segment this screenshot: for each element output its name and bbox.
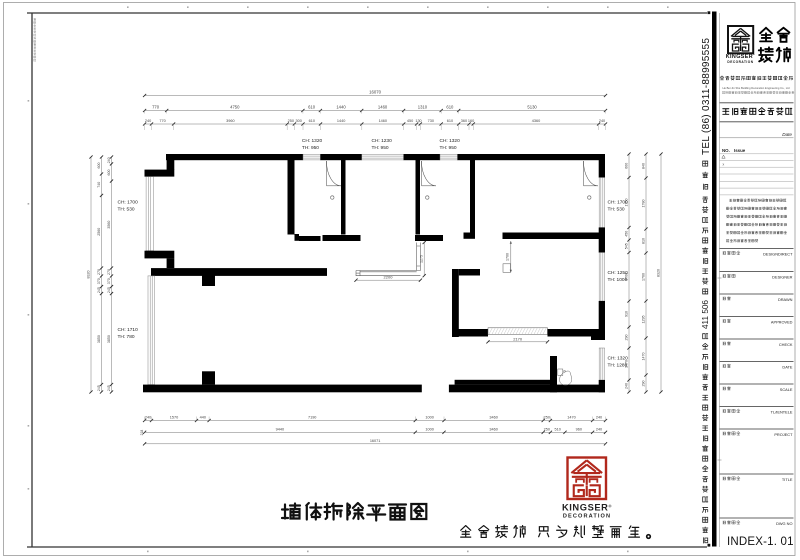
svg-text:770: 770 — [152, 105, 160, 110]
svg-text:PROJECT: PROJECT — [774, 432, 793, 437]
svg-text:130: 130 — [415, 119, 421, 123]
svg-text:1460: 1460 — [379, 119, 387, 123]
svg-text:1700: 1700 — [506, 253, 510, 261]
svg-text:2170: 2170 — [513, 336, 523, 341]
svg-text:5130: 5130 — [527, 105, 537, 110]
svg-text:1295: 1295 — [642, 316, 646, 324]
svg-text:1000: 1000 — [425, 428, 433, 432]
svg-text:TH: 780: TH: 780 — [118, 334, 135, 340]
svg-text:TEL (86) 0311-88995555: TEL (86) 0311-88995555 — [701, 38, 712, 155]
svg-text:610: 610 — [446, 105, 454, 110]
svg-text:240: 240 — [596, 428, 602, 432]
svg-text:3460: 3460 — [489, 416, 497, 420]
svg-text:740: 740 — [97, 182, 101, 188]
svg-text:4360: 4360 — [532, 119, 540, 123]
svg-text:1470: 1470 — [567, 416, 575, 420]
svg-text:245: 245 — [107, 287, 111, 293]
svg-text:Issue: Issue — [734, 148, 746, 153]
svg-text:TH: 530: TH: 530 — [118, 206, 135, 212]
svg-text:1470: 1470 — [642, 353, 646, 361]
svg-text:411 506: 411 506 — [701, 300, 710, 329]
svg-text:CH: 1320: CH: 1320 — [302, 138, 323, 144]
svg-text:SCALE: SCALE — [780, 387, 793, 392]
svg-text:CH: 1250: CH: 1250 — [608, 270, 629, 276]
svg-text:CH: 1700: CH: 1700 — [608, 200, 629, 206]
svg-text:DECORATION: DECORATION — [563, 514, 611, 520]
svg-text:CH: 1230: CH: 1230 — [372, 138, 393, 144]
svg-text:INDEX-1. 01: INDEX-1. 01 — [727, 536, 794, 548]
svg-text:545: 545 — [625, 243, 629, 249]
svg-text:250: 250 — [544, 428, 550, 432]
svg-text:8320: 8320 — [87, 271, 91, 279]
svg-text:240: 240 — [599, 119, 605, 123]
svg-text:1760: 1760 — [642, 273, 646, 281]
svg-text:9440: 9440 — [276, 428, 284, 432]
svg-text:240: 240 — [596, 416, 602, 420]
svg-text:3850: 3850 — [97, 335, 101, 343]
svg-text:370: 370 — [107, 278, 111, 284]
svg-text:DESIGNDIRECT: DESIGNDIRECT — [763, 252, 793, 257]
svg-text:2560: 2560 — [97, 228, 101, 236]
svg-text:810: 810 — [642, 238, 646, 244]
svg-text:240: 240 — [107, 157, 111, 163]
svg-text:250: 250 — [288, 119, 294, 123]
svg-text:450: 450 — [407, 119, 413, 123]
svg-text:360: 360 — [461, 119, 467, 123]
svg-text:160: 160 — [468, 119, 474, 123]
svg-text:DESIGNER: DESIGNER — [772, 275, 793, 280]
svg-text:600: 600 — [625, 163, 629, 169]
svg-text:TH: 530: TH: 530 — [608, 206, 625, 212]
svg-text:CHECK: CHECK — [779, 342, 793, 347]
svg-text:TL/IENTELE: TL/IENTELE — [771, 410, 793, 415]
svg-text:CH: 1320: CH: 1320 — [608, 356, 629, 362]
svg-text:CH: 1320: CH: 1320 — [440, 138, 461, 144]
svg-text:3850: 3850 — [107, 335, 111, 343]
svg-text:600: 600 — [97, 163, 101, 169]
svg-text:245: 245 — [97, 385, 101, 391]
svg-text:NO.: NO. — [722, 148, 730, 153]
svg-text:x: x — [723, 163, 725, 167]
svg-text:730: 730 — [428, 119, 434, 123]
svg-text:DRAWN: DRAWN — [778, 297, 793, 302]
svg-text:TH: 1000: TH: 1000 — [608, 277, 628, 283]
svg-text:245: 245 — [97, 287, 101, 293]
svg-text:370: 370 — [97, 278, 101, 284]
svg-text:4750: 4750 — [230, 105, 240, 110]
svg-text:250: 250 — [544, 416, 550, 420]
svg-text:770: 770 — [159, 119, 165, 123]
svg-text:270: 270 — [97, 269, 101, 275]
svg-text:CH: 1710: CH: 1710 — [118, 327, 139, 333]
svg-text:DECORATION: DECORATION — [727, 60, 753, 64]
svg-text:3960: 3960 — [226, 119, 234, 123]
svg-text:1570: 1570 — [170, 416, 178, 420]
svg-text:TH: 1280: TH: 1280 — [608, 362, 628, 368]
svg-text:8320: 8320 — [657, 269, 661, 277]
svg-text:218: 218 — [140, 430, 144, 436]
svg-text:440: 440 — [200, 416, 206, 420]
svg-text:1440: 1440 — [337, 119, 345, 123]
svg-text:1440: 1440 — [336, 105, 346, 110]
svg-text:240: 240 — [145, 119, 151, 123]
svg-text:960: 960 — [576, 428, 582, 432]
svg-text:1000: 1000 — [425, 416, 433, 420]
svg-text:510: 510 — [555, 428, 561, 432]
svg-text:He Bei Jin She Building Decora: He Bei Jin She Building Decoration Engin… — [722, 86, 790, 90]
svg-text:TH: 950: TH: 950 — [302, 145, 319, 151]
svg-text:TH: 950: TH: 950 — [440, 145, 457, 151]
svg-text:APPROVED: APPROVED — [771, 320, 793, 325]
svg-text:DWG NO: DWG NO — [776, 521, 792, 526]
svg-text:TH: 950: TH: 950 — [372, 145, 389, 151]
svg-text:290: 290 — [642, 381, 646, 387]
svg-text:600: 600 — [107, 170, 111, 176]
svg-text:1460: 1460 — [378, 105, 388, 110]
svg-text:290: 290 — [625, 335, 629, 341]
svg-text:3560: 3560 — [107, 221, 111, 229]
svg-text:610: 610 — [308, 105, 316, 110]
svg-text:CH: 1700: CH: 1700 — [118, 200, 139, 206]
svg-text:240: 240 — [625, 383, 629, 389]
svg-text:910: 910 — [625, 311, 629, 317]
svg-text:840: 840 — [642, 163, 646, 169]
svg-text:1310: 1310 — [418, 105, 428, 110]
svg-text:KINGSER®: KINGSER® — [562, 503, 612, 513]
svg-text:610: 610 — [309, 119, 315, 123]
svg-text:16071: 16071 — [370, 439, 381, 443]
svg-text:DATE: DATE — [782, 365, 792, 370]
svg-text:3460: 3460 — [489, 428, 497, 432]
svg-text:Date: Date — [782, 132, 792, 137]
svg-text:245: 245 — [107, 385, 111, 391]
svg-text:7190: 7190 — [308, 416, 316, 420]
svg-text:300: 300 — [296, 119, 302, 123]
svg-text:270: 270 — [107, 269, 111, 275]
svg-text:1780: 1780 — [642, 200, 646, 208]
svg-text:2200: 2200 — [384, 275, 394, 280]
svg-text:16070: 16070 — [369, 90, 382, 95]
svg-text:1275: 1275 — [420, 255, 424, 263]
svg-text:610: 610 — [447, 119, 453, 123]
svg-text:450: 450 — [625, 231, 629, 237]
svg-text:TITLE: TITLE — [782, 477, 793, 482]
svg-text:240: 240 — [145, 416, 151, 420]
